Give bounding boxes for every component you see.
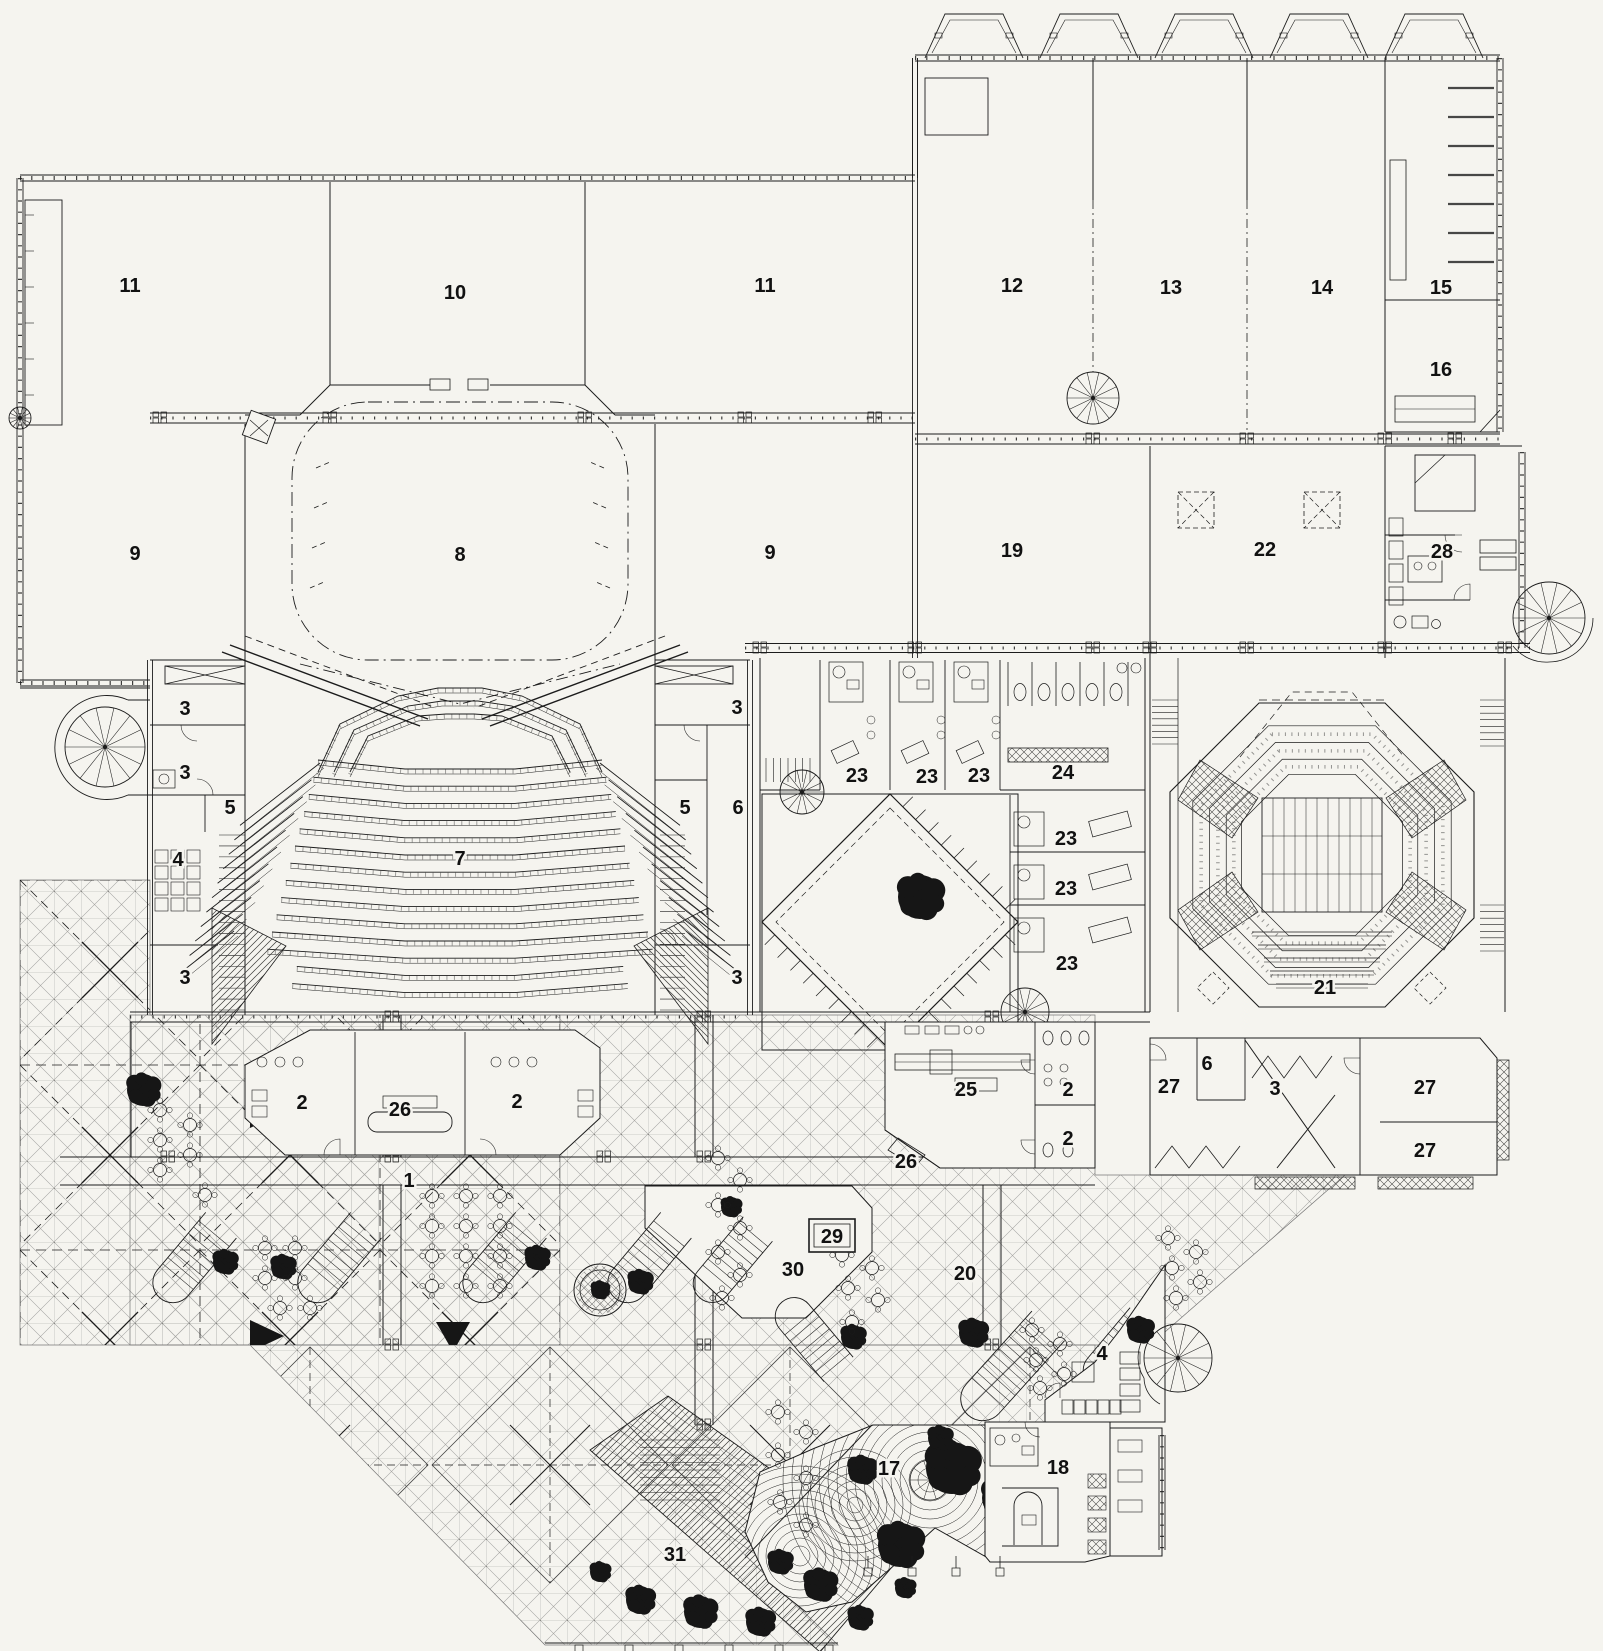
room-label-9: 9 xyxy=(764,542,775,564)
room-label-25: 25 xyxy=(955,1079,977,1101)
room-label-15: 15 xyxy=(1430,277,1452,299)
room-label-16: 16 xyxy=(1430,359,1452,381)
room-label-4: 4 xyxy=(1096,1343,1108,1365)
room-label-27: 27 xyxy=(1414,1077,1436,1099)
room-label-18: 18 xyxy=(1047,1457,1069,1479)
room-label-21: 21 xyxy=(1314,977,1336,999)
plan-linework xyxy=(9,14,1593,1651)
room-label-8: 8 xyxy=(454,544,465,566)
boxed-room-label-29: 29 xyxy=(809,1219,855,1252)
floor-plan-drawing: 1110111213141516989192228333575643323232… xyxy=(0,0,1603,1651)
room-label-23: 23 xyxy=(1055,828,1077,850)
room-label-9: 9 xyxy=(129,543,140,565)
floor-plan-sheet: 1110111213141516989192228333575643323232… xyxy=(0,0,1603,1651)
room-label-6: 6 xyxy=(1201,1053,1212,1075)
room-label-22: 22 xyxy=(1254,539,1276,561)
courtyard-block xyxy=(760,658,1145,1050)
room-label-13: 13 xyxy=(1160,277,1182,299)
room-label-4: 4 xyxy=(172,849,184,871)
room-label-1: 1 xyxy=(403,1170,414,1192)
wing-northwest xyxy=(9,58,918,686)
room-label-3: 3 xyxy=(179,967,190,989)
room-label-23: 23 xyxy=(1055,878,1077,900)
room-label-27: 27 xyxy=(1158,1076,1180,1098)
room-label-11: 11 xyxy=(754,275,775,297)
room-label-3: 3 xyxy=(731,697,742,719)
room-label-26: 26 xyxy=(389,1099,411,1121)
room-label-23: 23 xyxy=(916,766,938,788)
room-label-28: 28 xyxy=(1431,541,1453,563)
room-label-17: 17 xyxy=(878,1458,900,1480)
room-label-2: 2 xyxy=(1062,1128,1073,1150)
room-label-23: 23 xyxy=(1056,953,1078,975)
room-label-7: 7 xyxy=(454,848,465,870)
auditorium xyxy=(20,424,1150,1044)
room-label-2: 2 xyxy=(1062,1079,1073,1101)
room-label-24: 24 xyxy=(1052,762,1075,784)
room-label-26: 26 xyxy=(895,1151,917,1173)
room-label-14: 14 xyxy=(1311,277,1334,299)
room-label-30: 30 xyxy=(782,1259,804,1281)
room-label-3: 3 xyxy=(179,762,190,784)
room-label-10: 10 xyxy=(444,282,466,304)
room-label-20: 20 xyxy=(954,1263,976,1285)
room-label-27: 27 xyxy=(1414,1140,1436,1162)
room-label-23: 23 xyxy=(968,765,990,787)
room-label-6: 6 xyxy=(732,797,743,819)
room-label-23: 23 xyxy=(846,765,868,787)
room-label-29: 29 xyxy=(821,1226,843,1248)
room-label-31: 31 xyxy=(664,1544,686,1566)
wing-northeast xyxy=(913,14,1504,444)
room-label-5: 5 xyxy=(679,797,690,819)
room-label-2: 2 xyxy=(296,1092,307,1114)
rooms-19-22-28 xyxy=(745,446,1593,662)
room-label-3: 3 xyxy=(731,967,742,989)
room-label-3: 3 xyxy=(179,698,190,720)
octagonal-hall xyxy=(1150,658,1505,1012)
room-label-12: 12 xyxy=(1001,275,1023,297)
room-label-19: 19 xyxy=(1001,540,1023,562)
room-label-3: 3 xyxy=(1269,1078,1280,1100)
room-label-5: 5 xyxy=(224,797,235,819)
room-label-2: 2 xyxy=(511,1091,522,1113)
room-label-11: 11 xyxy=(119,275,140,297)
